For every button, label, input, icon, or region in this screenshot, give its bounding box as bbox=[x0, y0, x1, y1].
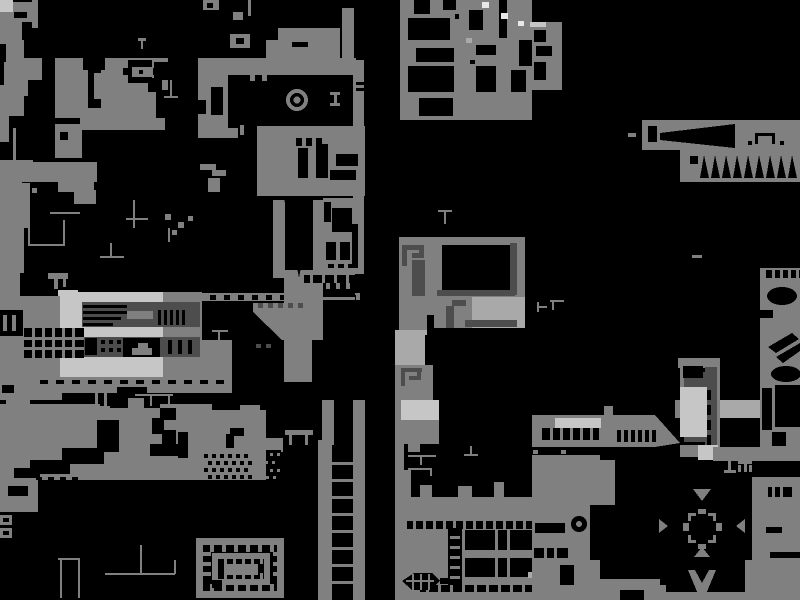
game-map-canvas[interactable] bbox=[0, 0, 800, 600]
game-map-screen bbox=[0, 0, 800, 600]
